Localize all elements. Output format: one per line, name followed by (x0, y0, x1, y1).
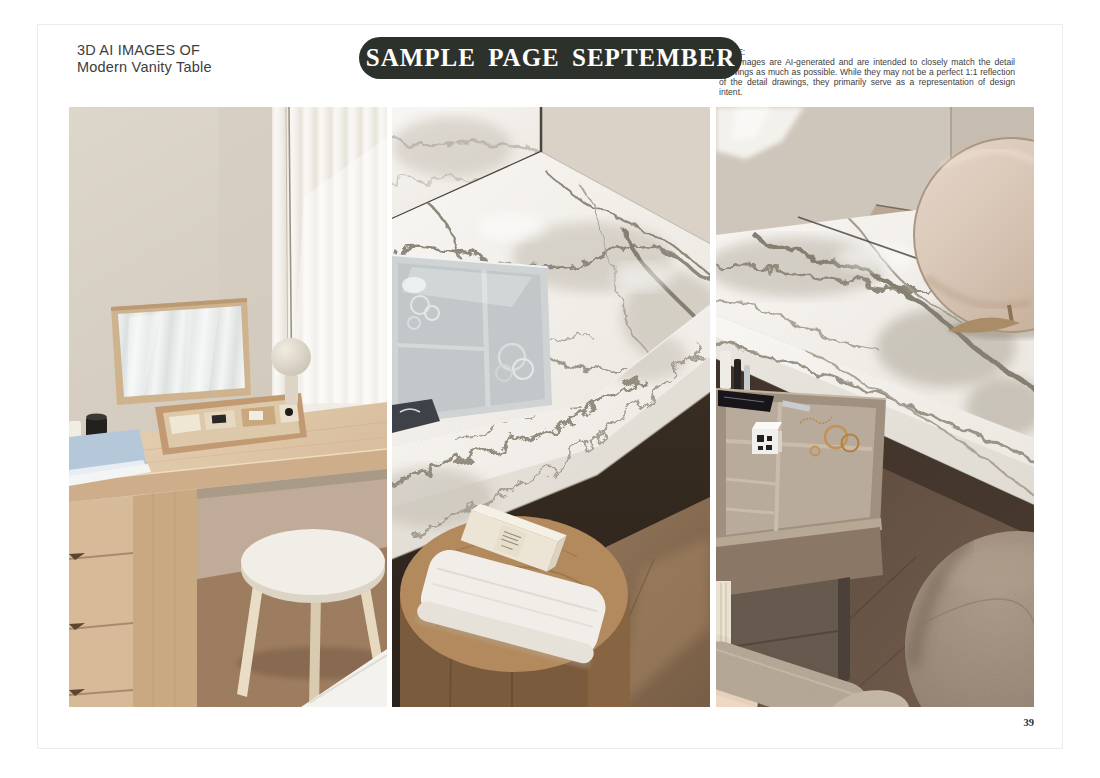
document-page: 3D AI IMAGES OF Modern Vanity Table NOTE… (37, 24, 1063, 749)
image-gallery (38, 25, 1062, 748)
disclaimer-body: The images are AI-generated and are inte… (719, 57, 1015, 97)
sample-banner: SAMPLE PAGE SEPTEMBER (359, 37, 742, 79)
photo-marble-drawer (716, 107, 1034, 707)
vanity-desk-illustration (69, 107, 387, 707)
marble-drawer-illustration (716, 107, 1034, 707)
page-number: 39 (994, 717, 1034, 728)
photo-marble-counter (392, 107, 710, 707)
photo-vanity-desk (69, 107, 387, 707)
canvas: 3D AI IMAGES OF Modern Vanity Table NOTE… (0, 0, 1100, 778)
disclaimer-note: NOTE: The images are AI-generated and ar… (719, 47, 1015, 97)
page-title: 3D AI IMAGES OF Modern Vanity Table (77, 42, 212, 75)
page-title-line2: Modern Vanity Table (77, 59, 212, 76)
disclaimer-heading: NOTE: (719, 47, 1015, 57)
marble-counter-illustration (392, 107, 710, 707)
page-title-line1: 3D AI IMAGES OF (77, 42, 212, 59)
